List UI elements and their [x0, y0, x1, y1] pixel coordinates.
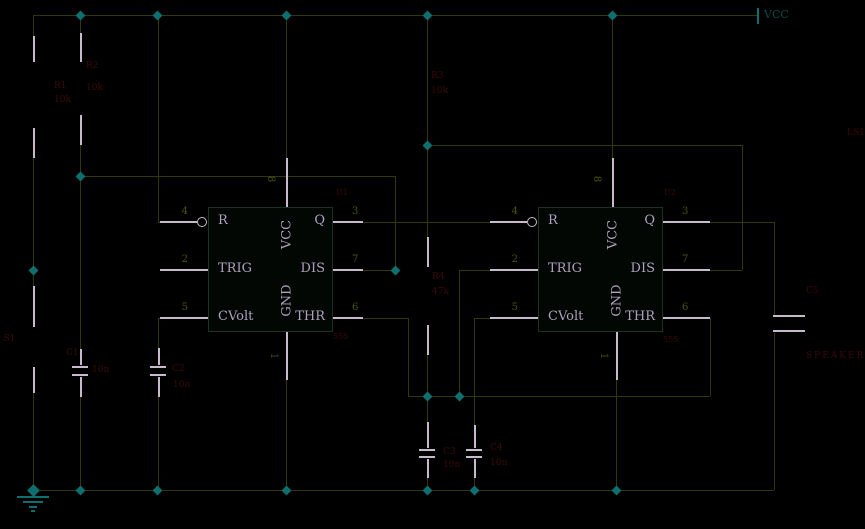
- wire-segment: [742, 145, 743, 270]
- wire-segment: [427, 355, 428, 422]
- component-lead: [419, 449, 435, 451]
- pin-label-TRIG: TRIG: [548, 262, 582, 275]
- pin-label-gnd: GND: [611, 281, 624, 321]
- component-lead: [474, 425, 476, 448]
- component-lead: [490, 269, 538, 271]
- junction-dot: [75, 485, 85, 495]
- pin-number-5: 5: [174, 303, 188, 313]
- component-lead: [333, 269, 363, 271]
- pin-label-CVolt: CVolt: [218, 310, 253, 323]
- pin-number-3: 3: [682, 207, 688, 217]
- component-lead: [333, 317, 363, 319]
- wire-segment: [459, 270, 460, 396]
- wire-segment: [80, 176, 395, 177]
- wire-segment: [33, 15, 34, 36]
- schematic-canvas[interactable]: VCCR110kR210kR310kR447kPB S1C110nC210nC3…: [0, 0, 865, 529]
- c2-ref: C2: [172, 365, 185, 374]
- wire-segment: [427, 15, 428, 237]
- wire-segment: [408, 318, 409, 396]
- terminal-ground-segment: [31, 510, 35, 512]
- junction-dot: [607, 10, 617, 20]
- junction-dot: [75, 171, 85, 181]
- wire-segment: [474, 318, 490, 319]
- junction-dot: [27, 484, 40, 497]
- pin-number-7: 7: [352, 255, 358, 265]
- junction-dot: [422, 485, 432, 495]
- c3-value: 10n: [443, 461, 460, 470]
- wire-segment: [158, 15, 159, 222]
- wire-segment: [363, 318, 408, 319]
- r1-value: 10k: [54, 96, 71, 105]
- speaker-ref: LS1: [847, 129, 865, 138]
- wire-segment: [427, 396, 710, 397]
- component-lead: [158, 348, 160, 365]
- wire-segment: [710, 318, 711, 396]
- chip-value-U2: 555: [663, 336, 678, 344]
- component-lead: [160, 317, 208, 319]
- inverter-bubble-icon: [527, 217, 537, 227]
- pin-number-8: 8: [591, 176, 601, 182]
- component-lead: [33, 128, 35, 158]
- component-lead: [427, 422, 429, 448]
- pin-label-vcc: VCC: [607, 212, 620, 258]
- r2-ref: R2: [86, 62, 99, 71]
- component-lead: [427, 325, 429, 355]
- c5-ref: C5: [806, 287, 819, 296]
- wire-segment: [158, 318, 159, 348]
- component-lead: [612, 158, 614, 207]
- junction-dot: [422, 10, 432, 20]
- component-lead: [663, 269, 710, 271]
- r3-value: 10k: [431, 87, 448, 96]
- wire-segment: [710, 270, 742, 271]
- component-lead: [33, 286, 35, 327]
- junction-dot: [390, 265, 400, 275]
- component-lead: [80, 349, 82, 365]
- terminal-ground-segment: [757, 8, 759, 24]
- chip-ref-U2: U2: [664, 189, 676, 197]
- junction-dot: [75, 10, 85, 20]
- component-lead: [33, 36, 35, 62]
- pin-number-2: 2: [174, 255, 188, 265]
- component-lead: [663, 221, 710, 223]
- wire-segment: [33, 15, 757, 16]
- junction-dot: [454, 391, 464, 401]
- component-lead: [80, 377, 82, 397]
- pin-number-6: 6: [682, 303, 688, 313]
- component-lead: [773, 315, 805, 317]
- component-lead: [616, 332, 618, 380]
- wire-segment: [774, 222, 775, 315]
- r3-ref: R3: [431, 72, 444, 81]
- r4-ref: R4: [432, 273, 445, 282]
- pin-number-8: 8: [265, 176, 275, 182]
- pin-label-TRIG: TRIG: [218, 262, 252, 275]
- junction-dot: [422, 140, 432, 150]
- wire-segment: [158, 397, 159, 490]
- component-lead: [160, 269, 208, 271]
- component-lead: [150, 366, 166, 368]
- chip-value-U1: 555: [333, 333, 348, 341]
- component-lead: [286, 158, 288, 207]
- pin-label-vcc: VCC: [281, 212, 294, 258]
- c1-ref: C1: [66, 349, 79, 358]
- component-lead: [474, 459, 476, 478]
- junction-dot: [281, 10, 291, 20]
- component-lead: [419, 456, 435, 458]
- wire-segment: [33, 393, 34, 490]
- component-lead: [80, 33, 82, 62]
- wire-segment: [363, 222, 490, 223]
- pin-number-1: 1: [268, 353, 278, 359]
- component-lead: [773, 330, 805, 332]
- wire-segment: [459, 270, 490, 271]
- pushbutton-ref: PB S1: [0, 335, 15, 344]
- r2-value: 10k: [86, 84, 103, 93]
- inverter-bubble-icon: [197, 217, 207, 227]
- component-lead: [160, 221, 197, 223]
- c4-value: 10n: [490, 459, 507, 468]
- wire-segment: [612, 15, 613, 158]
- component-lead: [158, 377, 160, 397]
- vcc-terminal-label: VCC: [764, 9, 789, 20]
- pin-number-1: 1: [598, 353, 608, 359]
- component-lead: [427, 459, 429, 478]
- terminal-ground-segment: [23, 501, 43, 503]
- pin-number-4: 4: [174, 207, 188, 217]
- component-lead: [490, 221, 527, 223]
- pin-number-5: 5: [504, 303, 518, 313]
- terminal-ground-segment: [29, 506, 37, 508]
- component-lead: [663, 317, 710, 319]
- pin-number-6: 6: [352, 303, 358, 313]
- pin-label-DIS: DIS: [275, 262, 325, 275]
- pin-label-R: R: [548, 214, 558, 227]
- wire-segment: [774, 333, 775, 490]
- component-lead: [80, 115, 82, 145]
- c1-value: 10n: [92, 366, 109, 375]
- wire-segment: [710, 222, 774, 223]
- component-lead: [286, 332, 288, 380]
- component-lead: [33, 367, 35, 393]
- wire-segment: [80, 397, 81, 490]
- r4-value: 47k: [432, 288, 449, 297]
- pin-label-DIS: DIS: [605, 262, 655, 275]
- wire-segment: [427, 145, 742, 146]
- wire-segment: [286, 380, 287, 490]
- wire-segment: [33, 490, 774, 491]
- pin-label-R: R: [218, 214, 228, 227]
- c3-ref: C3: [443, 448, 456, 457]
- pin-label-CVolt: CVolt: [548, 310, 583, 323]
- c4-ref: C4: [490, 444, 503, 453]
- pin-number-3: 3: [352, 207, 358, 217]
- component-lead: [150, 374, 166, 376]
- wire-segment: [286, 15, 287, 158]
- component-lead: [466, 449, 482, 451]
- junction-dot: [152, 485, 162, 495]
- component-lead: [333, 221, 363, 223]
- junction-dot: [422, 391, 432, 401]
- wire-segment: [474, 318, 475, 425]
- component-lead: [72, 374, 88, 376]
- component-lead: [466, 456, 482, 458]
- component-lead: [427, 237, 429, 267]
- c2-value: 10n: [173, 381, 190, 390]
- junction-dot: [469, 485, 479, 495]
- pin-label-gnd: GND: [281, 281, 294, 321]
- chip-ref-U1: U1: [336, 189, 348, 197]
- component-lead: [490, 317, 538, 319]
- wire-segment: [395, 176, 396, 270]
- speaker-value: SPEAKER: [806, 352, 865, 361]
- pin-number-7: 7: [682, 255, 688, 265]
- junction-dot: [28, 265, 38, 275]
- junction-dot: [611, 485, 621, 495]
- pin-number-2: 2: [504, 255, 518, 265]
- r1-ref: R1: [54, 82, 67, 91]
- pin-number-4: 4: [504, 207, 518, 217]
- wire-segment: [616, 380, 617, 490]
- junction-dot: [152, 10, 162, 20]
- junction-dot: [281, 485, 291, 495]
- component-lead: [72, 366, 88, 368]
